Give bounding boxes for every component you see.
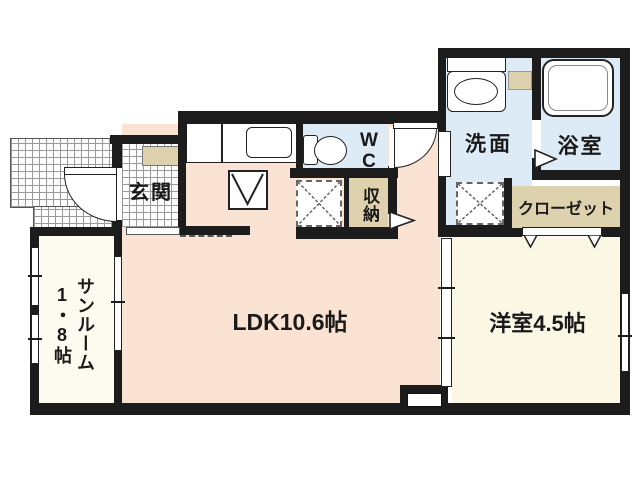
wall: [30, 403, 630, 415]
pillar-notch-inner: [407, 393, 442, 407]
closet-bifold-mark: [523, 235, 538, 249]
bathtub-rim: [548, 65, 608, 111]
washing-machine-x-mark: [458, 184, 502, 223]
closet-bifold-mark: [587, 235, 602, 249]
window-tick: [111, 301, 125, 303]
wash-basin-bowl: [454, 78, 498, 105]
window-tick: [438, 287, 455, 289]
wall: [532, 170, 630, 180]
window-tick: [28, 275, 42, 277]
wall: [532, 58, 541, 120]
wall: [602, 227, 630, 237]
wc-label: W C: [348, 125, 390, 177]
wc-label-line1: W: [360, 130, 378, 151]
western-room-window: [621, 293, 629, 372]
wall: [112, 135, 122, 168]
stove-v-mark: [230, 172, 265, 207]
sunroom-sliding-door: [114, 256, 122, 351]
pipe-space-block: [508, 71, 532, 90]
bathroom-label: 浴室: [541, 130, 620, 160]
wall: [30, 227, 122, 236]
western-room-label: 洋室4.5帖: [460, 306, 615, 338]
window-tick: [28, 338, 42, 340]
wall: [438, 228, 522, 237]
ldk-western-sliding-door: [441, 238, 452, 387]
bathtub-icon: [542, 59, 614, 117]
window-tick: [618, 335, 632, 337]
sunroom-label: サンルーム 1・8帖: [50, 262, 96, 387]
wall: [178, 226, 250, 235]
genkan-step-edge: [126, 227, 180, 235]
storage-door-mark: [389, 211, 416, 230]
ceiling-dashed-line: [180, 235, 232, 237]
wall: [388, 178, 397, 214]
refrigerator-space: [296, 180, 342, 227]
wall: [296, 227, 398, 239]
kitchen-sink: [246, 127, 292, 158]
wall: [438, 48, 446, 131]
refrigerator-x-mark: [298, 182, 340, 225]
washing-machine-space: [456, 182, 504, 225]
washroom-counter: [447, 57, 506, 72]
storage-label: 収納: [353, 183, 385, 227]
sunroom-label-size: 1・8帖: [52, 285, 72, 365]
closet-label: クローゼット: [510, 195, 622, 219]
stove-icon: [228, 170, 268, 210]
toilet-bowl: [314, 136, 347, 165]
kitchen-counter-divider: [221, 122, 223, 162]
window-tick: [438, 337, 455, 339]
wall: [438, 48, 630, 58]
washroom-label: 洗面: [446, 128, 532, 158]
floor-plan: LDK10.6帖 洋室4.5帖 玄関 洗面 浴室 クローゼット W C 収納 サ…: [0, 0, 640, 480]
sunroom-label-name: サンルーム: [75, 277, 95, 372]
ldk-label: LDK10.6帖: [200, 303, 380, 337]
wc-label-line2: C: [362, 151, 376, 172]
genkan-label: 玄関: [122, 176, 180, 205]
wall: [344, 178, 349, 228]
